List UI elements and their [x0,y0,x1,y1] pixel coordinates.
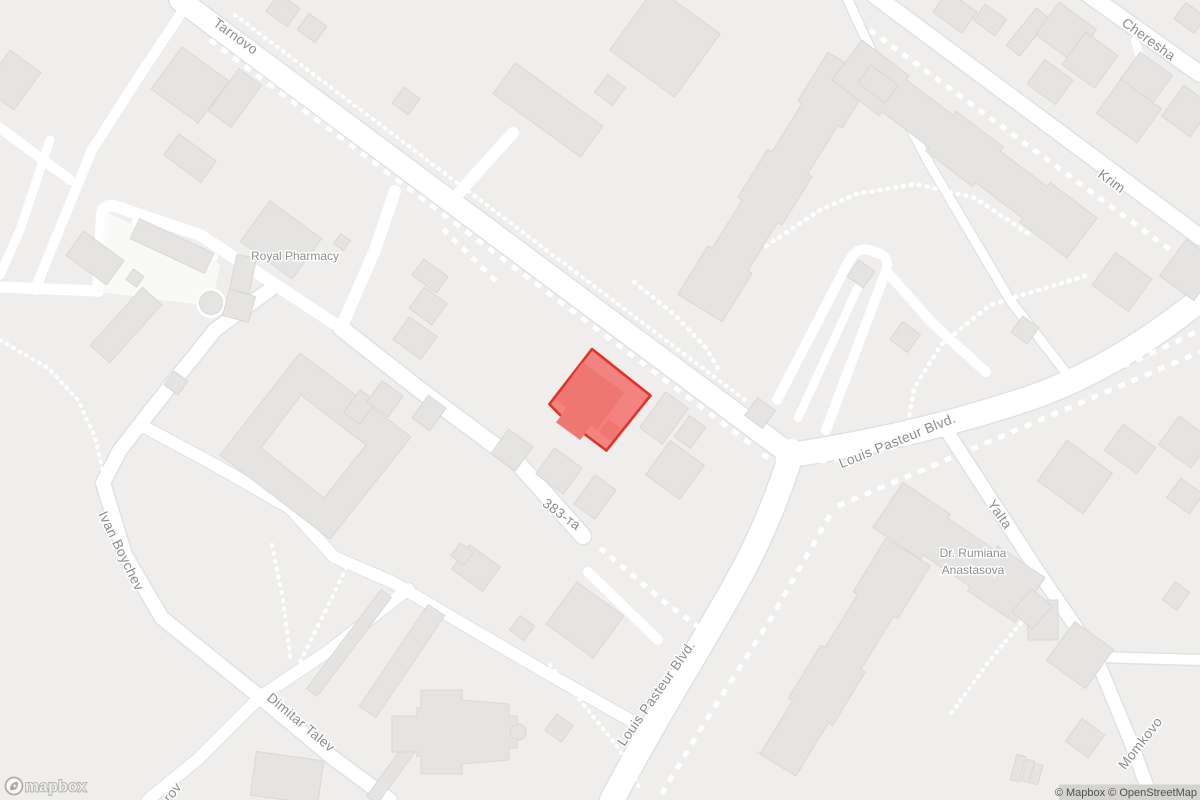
svg-text:Dr. Rumiana: Dr. Rumiana [940,546,1007,560]
svg-text:Royal Pharmacy: Royal Pharmacy [251,249,339,263]
svg-text:Anastasova: Anastasova [942,563,1005,577]
svg-text:© Mapbox © OpenStreetMap: © Mapbox © OpenStreetMap [1055,787,1197,799]
svg-text:mapbox: mapbox [25,779,87,796]
